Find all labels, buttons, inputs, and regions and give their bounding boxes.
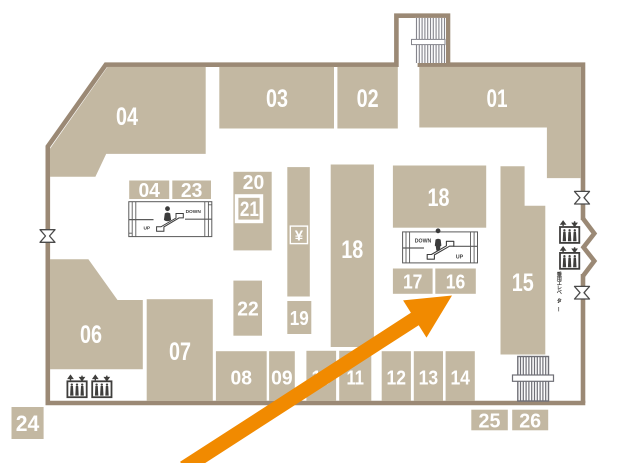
svg-text:UP: UP [456,255,464,261]
svg-text:03: 03 [266,85,288,113]
svg-text:01: 01 [487,85,508,113]
svg-text:DOWN: DOWN [415,238,432,244]
svg-text:08: 08 [231,368,253,390]
svg-text:23: 23 [181,180,203,202]
svg-text:26: 26 [519,410,541,433]
svg-text:16: 16 [446,271,466,294]
svg-text:UP: UP [143,225,150,231]
svg-text:07: 07 [169,338,191,366]
svg-text:11: 11 [346,368,364,390]
svg-text:¥: ¥ [295,227,304,244]
svg-text:19: 19 [290,308,309,330]
svg-text:06: 06 [80,321,102,349]
svg-text:18: 18 [428,184,450,212]
svg-text:12: 12 [387,368,407,390]
svg-text:04: 04 [138,180,160,202]
svg-text:24: 24 [16,411,40,436]
svg-text:21: 21 [240,198,259,221]
svg-text:15: 15 [512,269,534,297]
svg-text:25: 25 [479,410,501,433]
svg-text:22: 22 [237,298,259,320]
svg-text:02: 02 [357,85,379,113]
svg-text:18: 18 [341,236,363,264]
svg-text:09: 09 [271,368,293,390]
svg-text:04: 04 [116,103,138,131]
svg-text:14: 14 [450,368,470,390]
svg-text:17: 17 [403,271,423,294]
svg-text:DOWN: DOWN [186,209,202,215]
svg-text:13: 13 [419,368,439,390]
svg-text:乗用エレベーター: 乗用エレベーター [555,270,563,312]
svg-text:20: 20 [243,172,265,194]
